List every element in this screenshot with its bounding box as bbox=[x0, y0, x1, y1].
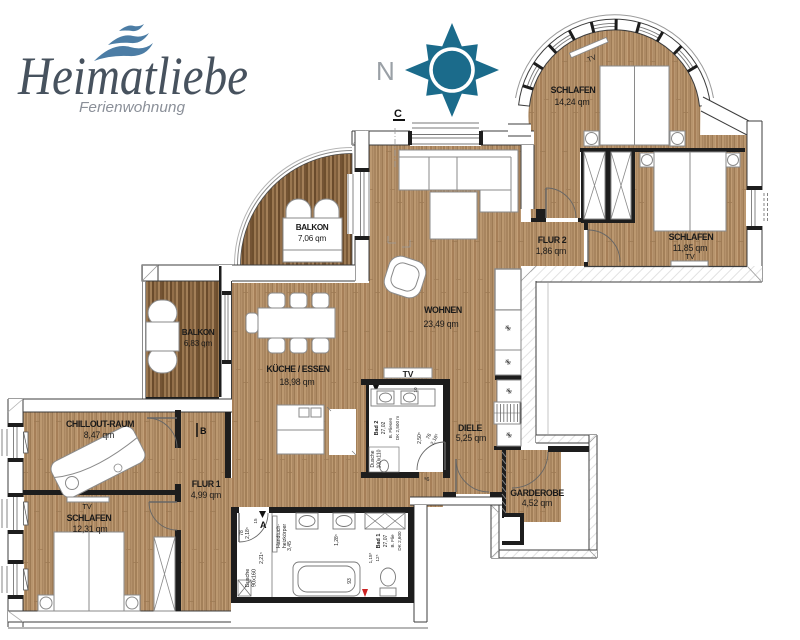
svg-text:93: 93 bbox=[347, 578, 353, 584]
svg-text:15: 15 bbox=[253, 518, 258, 524]
svg-text:12⁵: 12⁵ bbox=[375, 554, 380, 561]
svg-text:TV: TV bbox=[685, 252, 694, 261]
svg-text:C: C bbox=[394, 108, 402, 120]
svg-text:7,06 qm: 7,06 qm bbox=[298, 234, 327, 243]
svg-text:4,52 qm: 4,52 qm bbox=[522, 498, 552, 508]
svg-text:CHILLOUT-RAUM: CHILLOUT-RAUM bbox=[66, 419, 134, 429]
svg-text:27,07: 27,07 bbox=[383, 535, 389, 548]
svg-text:27,02: 27,02 bbox=[381, 422, 387, 435]
svg-text:1,28⁵: 1,28⁵ bbox=[334, 534, 340, 546]
svg-text:1,15⁵: 1,15⁵ bbox=[368, 552, 373, 563]
svg-text:8,47 qm: 8,47 qm bbox=[84, 430, 114, 440]
svg-text:N: N bbox=[376, 56, 395, 86]
svg-text:DK 2,500 m: DK 2,500 m bbox=[395, 416, 400, 440]
svg-text:B. Fliesen: B. Fliesen bbox=[388, 417, 393, 438]
svg-text:Dusche: Dusche bbox=[245, 569, 251, 588]
svg-text:⁹6: ⁹6 bbox=[424, 476, 429, 483]
svg-text:2,18⁵: 2,18⁵ bbox=[245, 527, 251, 539]
svg-text:TV: TV bbox=[403, 369, 414, 379]
svg-text:10: 10 bbox=[413, 387, 418, 393]
svg-text:GARDEROBE: GARDEROBE bbox=[510, 488, 564, 498]
svg-text:5,25 qm: 5,25 qm bbox=[456, 433, 486, 443]
svg-text:1,86 qm: 1,86 qm bbox=[536, 246, 566, 256]
svg-text:TV: TV bbox=[82, 502, 91, 511]
svg-text:B. Flie: B. Flie bbox=[390, 534, 395, 547]
svg-text:12,31 qm: 12,31 qm bbox=[72, 524, 107, 534]
svg-text:WOHNEN: WOHNEN bbox=[424, 305, 462, 315]
svg-text:90x160: 90x160 bbox=[252, 569, 258, 587]
svg-text:2,21⁵: 2,21⁵ bbox=[259, 552, 265, 564]
svg-text:A: A bbox=[260, 520, 267, 530]
svg-text:14,24 qm: 14,24 qm bbox=[554, 97, 589, 107]
svg-text:SCHLAFEN: SCHLAFEN bbox=[67, 513, 112, 523]
svg-text:FLUR 1: FLUR 1 bbox=[192, 479, 221, 489]
svg-text:Bad 2: Bad 2 bbox=[374, 421, 380, 436]
svg-text:BALKON: BALKON bbox=[182, 328, 215, 337]
svg-text:Ferienwohnung: Ferienwohnung bbox=[79, 99, 186, 116]
svg-text:BALKON: BALKON bbox=[296, 223, 329, 232]
svg-text:3,45: 3,45 bbox=[287, 541, 293, 551]
svg-text:6,83 qm: 6,83 qm bbox=[184, 339, 213, 348]
svg-text:B: B bbox=[200, 426, 207, 436]
svg-text:2,50⁵: 2,50⁵ bbox=[417, 432, 423, 444]
svg-text:DK 2,600: DK 2,600 bbox=[397, 531, 402, 551]
svg-text:SCHLAFEN: SCHLAFEN bbox=[669, 232, 714, 242]
svg-text:4,99 qm: 4,99 qm bbox=[191, 490, 221, 500]
svg-text:SCHLAFEN: SCHLAFEN bbox=[551, 85, 596, 95]
svg-text:Dusche: Dusche bbox=[370, 450, 376, 467]
svg-text:18,98 qm: 18,98 qm bbox=[279, 377, 314, 387]
svg-text:Bad 1: Bad 1 bbox=[376, 534, 382, 549]
svg-text:FLUR 2: FLUR 2 bbox=[538, 235, 567, 245]
svg-text:100x110: 100x110 bbox=[377, 449, 383, 468]
svg-text:23,49 qm: 23,49 qm bbox=[423, 319, 458, 329]
svg-text:DIELE: DIELE bbox=[458, 423, 482, 433]
svg-text:KÜCHE / ESSEN: KÜCHE / ESSEN bbox=[266, 364, 329, 374]
